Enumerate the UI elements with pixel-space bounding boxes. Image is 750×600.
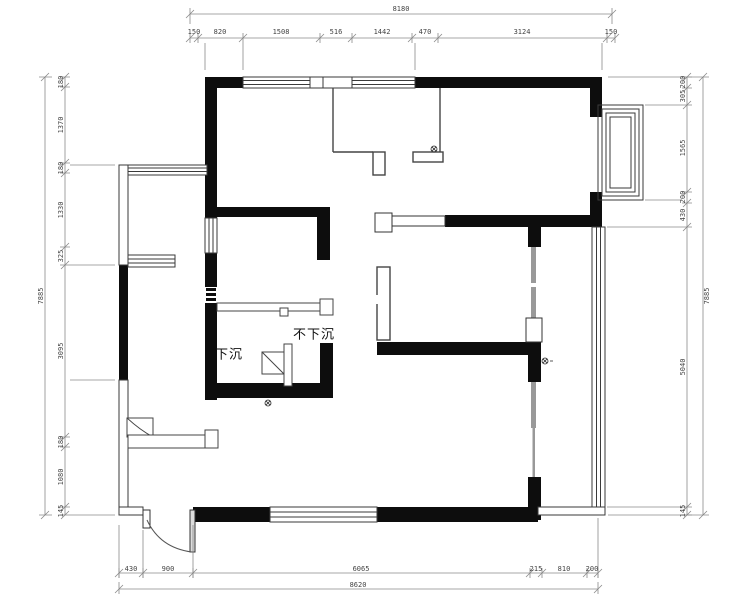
bay-window xyxy=(598,105,643,200)
closet-wall-left xyxy=(333,88,373,152)
dim-top-seg: 820 xyxy=(214,28,227,36)
floor-plan-page: 下沉 不下沉 8180 150 820 1508 516 1442 470 31… xyxy=(0,0,750,600)
dim-top-seg: 1508 xyxy=(273,28,290,36)
dim-top-seg: 516 xyxy=(330,28,343,36)
dim-right-seg: 1565 xyxy=(679,140,687,157)
dim-right-seg: 5040 xyxy=(679,359,687,376)
dim-bottom-seg: 810 xyxy=(558,565,571,573)
entry-door-swing-arc xyxy=(147,520,192,552)
label-not-sunken: 不下沉 xyxy=(293,324,335,343)
window-top-2 xyxy=(352,77,415,88)
dim-left-segment-line xyxy=(60,73,115,519)
entry-door-hinge xyxy=(143,510,150,528)
opening-top xyxy=(323,77,352,88)
doors xyxy=(143,213,542,552)
hinge-mark xyxy=(206,298,216,301)
dim-right-total: 7885 xyxy=(703,288,711,305)
bath-fixture xyxy=(262,344,292,386)
dim-right-seg: 430 xyxy=(679,209,687,222)
label-sunken: 下沉 xyxy=(215,344,243,363)
walls xyxy=(119,77,602,522)
window-top-1 xyxy=(243,77,310,88)
floor-plan-drawing xyxy=(0,0,750,600)
beam xyxy=(217,299,333,316)
dim-right-total-line xyxy=(608,73,709,519)
wall-right-below-bay xyxy=(590,192,602,227)
glass-partition-lower xyxy=(531,382,536,428)
dim-top-total: 8180 xyxy=(393,5,410,13)
bath-door-panel xyxy=(526,318,542,342)
closet-foot-right xyxy=(413,152,443,162)
dim-left-total: 7885 xyxy=(37,288,45,305)
fixtures xyxy=(127,146,553,448)
wall-sunken-right xyxy=(320,343,333,391)
dim-bottom-total: 8620 xyxy=(350,581,367,589)
partition-notch xyxy=(375,295,383,304)
window-right-long xyxy=(592,227,605,507)
dim-left-seg: 1330 xyxy=(57,202,65,219)
hinge-mark xyxy=(206,293,216,296)
wall-kitchen-stub xyxy=(317,217,330,260)
dim-right-seg: 145 xyxy=(679,505,687,518)
floor-drain-icons xyxy=(265,146,553,406)
glass-partition-thin xyxy=(533,428,536,477)
wall-top-right xyxy=(415,77,602,88)
entry-door-leaf xyxy=(190,510,195,552)
wall-left-outer xyxy=(119,265,128,380)
drain-icon xyxy=(265,400,271,406)
dim-left-seg: 325 xyxy=(57,250,65,263)
dim-left-seg: 180 xyxy=(57,162,65,175)
dim-right-seg: 305 xyxy=(679,90,687,103)
dim-right-seg: 200 xyxy=(679,191,687,204)
wall-stub-middle xyxy=(528,355,541,382)
dim-bottom-seg: 430 xyxy=(125,565,138,573)
wall-stub-upper xyxy=(528,227,541,247)
closet-foot-left xyxy=(373,152,385,175)
dimension-lines xyxy=(39,8,709,594)
dim-left-seg: 3095 xyxy=(57,343,65,360)
thin-wall-bottom-left xyxy=(119,507,143,515)
dim-left-seg: 145 xyxy=(57,505,65,518)
window-left-upper xyxy=(119,165,207,175)
wall-bedroom-divider xyxy=(445,215,592,227)
dim-left-seg: 1080 xyxy=(57,469,65,486)
dim-top-seg: 150 xyxy=(188,28,201,36)
dim-bottom-seg: 200 xyxy=(586,565,599,573)
window-pier xyxy=(310,77,323,88)
dim-top-seg: 470 xyxy=(419,28,432,36)
hinge-mark xyxy=(206,288,216,291)
wall-sunken-bottom xyxy=(205,383,333,398)
thin-wall-bottom-right xyxy=(538,507,605,515)
dim-left-seg: 1370 xyxy=(57,117,65,134)
wall-right-above-bay xyxy=(590,88,602,117)
dim-bottom-seg: 215 xyxy=(530,565,543,573)
wall-bottom-right xyxy=(377,507,538,522)
glass-break-mark xyxy=(529,283,538,287)
drain-icon xyxy=(431,146,437,152)
wall-top-left xyxy=(205,77,243,88)
entry-cabinet xyxy=(127,418,218,448)
dim-left-seg: 180 xyxy=(57,436,65,449)
dim-bottom-seg: 6065 xyxy=(353,565,370,573)
wall-midleft-vertical xyxy=(205,253,217,287)
window-bottom xyxy=(270,507,377,522)
thin-wall-left-lower xyxy=(119,380,128,515)
wall-kitchen-divider xyxy=(205,207,330,217)
dim-right-seg: 200 xyxy=(679,76,687,89)
dim-left-seg: 180 xyxy=(57,76,65,89)
dim-top-seg: 150 xyxy=(605,28,618,36)
window-interior-vertical xyxy=(205,218,217,253)
dim-bottom-seg: 900 xyxy=(162,565,175,573)
bedroom-door-opening xyxy=(392,216,445,226)
thin-wall-left-upper xyxy=(119,165,128,265)
wall-bottom-left xyxy=(193,507,270,522)
wall-upperleft-vertical xyxy=(205,88,217,218)
window-left-inner xyxy=(128,255,175,267)
dim-top-segment-line xyxy=(186,33,619,70)
dim-top-seg: 1442 xyxy=(374,28,391,36)
wall-bath-horizontal xyxy=(377,342,541,355)
drain-icon xyxy=(542,358,553,364)
bedroom-door-jamb xyxy=(375,213,392,232)
dim-top-seg: 3124 xyxy=(514,28,531,36)
